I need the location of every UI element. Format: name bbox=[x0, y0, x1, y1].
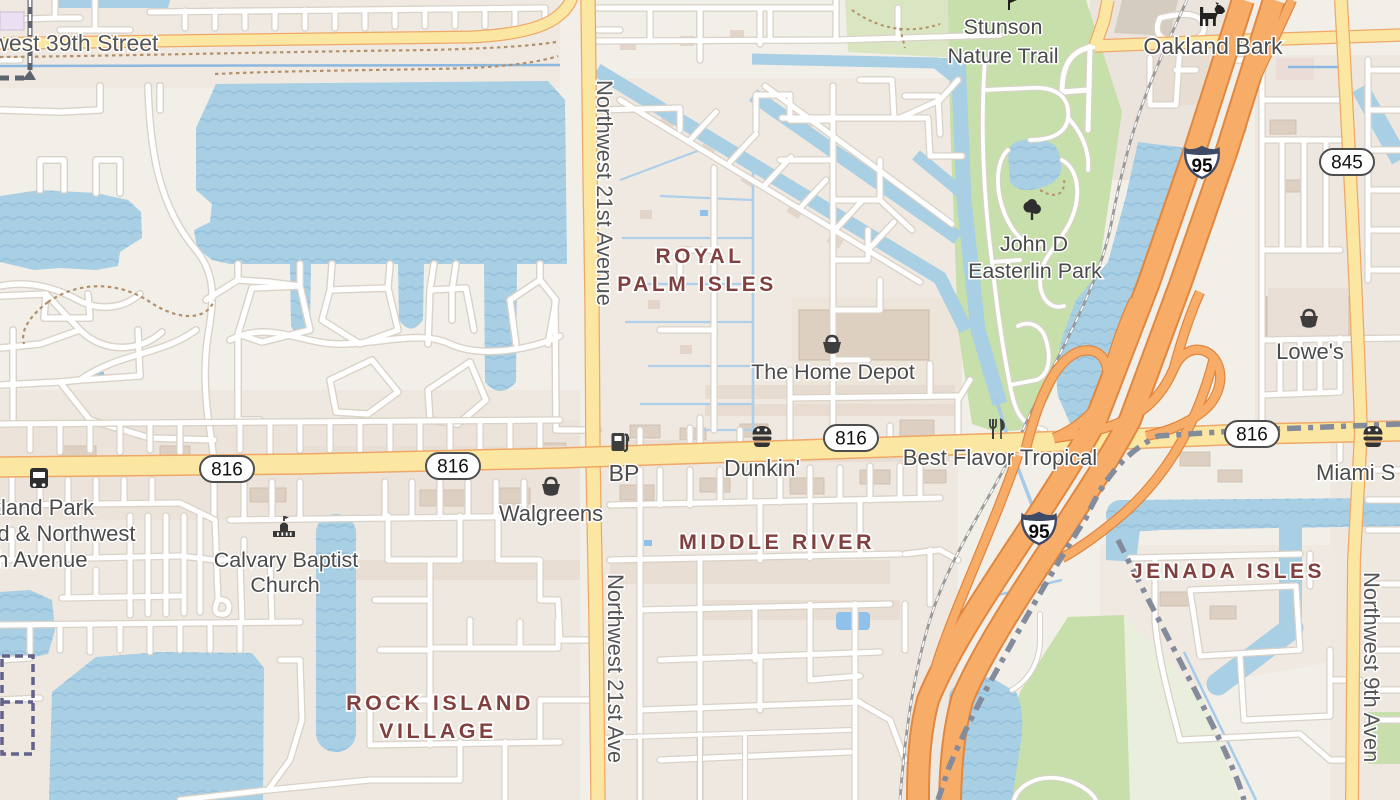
svg-text:kland Park: kland Park bbox=[0, 495, 95, 520]
svg-text:VILLAGE: VILLAGE bbox=[379, 719, 497, 743]
svg-text:Oakland Bark: Oakland Bark bbox=[1143, 33, 1283, 59]
svg-text:Church: Church bbox=[250, 573, 319, 597]
svg-text:816: 816 bbox=[835, 429, 867, 450]
svg-text:MIDDLE RIVER: MIDDLE RIVER bbox=[679, 530, 875, 554]
svg-text:95: 95 bbox=[1028, 522, 1050, 543]
svg-text:Dunkin': Dunkin' bbox=[724, 455, 800, 481]
svg-text:Northwest 21st Ave: Northwest 21st Ave bbox=[603, 574, 628, 763]
svg-text:95: 95 bbox=[1191, 156, 1213, 177]
svg-text:Stunson: Stunson bbox=[964, 15, 1043, 39]
svg-text:rd & Northwest: rd & Northwest bbox=[0, 521, 136, 546]
svg-text:845: 845 bbox=[1331, 153, 1363, 174]
svg-text:816: 816 bbox=[437, 457, 469, 478]
svg-text:Best Flavor Tropical: Best Flavor Tropical bbox=[903, 445, 1097, 470]
svg-text:Northwest 39th Street: Northwest 39th Street bbox=[0, 30, 159, 56]
svg-text:PALM ISLES: PALM ISLES bbox=[617, 273, 776, 296]
svg-text:Nature Trail: Nature Trail bbox=[947, 44, 1058, 68]
svg-text:816: 816 bbox=[211, 460, 243, 481]
svg-text:ROCK ISLAND: ROCK ISLAND bbox=[346, 691, 534, 715]
svg-text:Northwest 21st Avenue: Northwest 21st Avenue bbox=[592, 80, 617, 306]
svg-text:The Home Depot: The Home Depot bbox=[751, 360, 915, 384]
svg-text:JENADA ISLES: JENADA ISLES bbox=[1131, 560, 1325, 583]
svg-text:th Avenue: th Avenue bbox=[0, 547, 87, 572]
svg-text:816: 816 bbox=[1236, 425, 1268, 446]
svg-text:Easterlin Park: Easterlin Park bbox=[968, 259, 1102, 283]
svg-text:Northwest 9th Aven: Northwest 9th Aven bbox=[1359, 572, 1384, 762]
svg-text:Lowe's: Lowe's bbox=[1276, 339, 1344, 364]
svg-text:Calvary Baptist: Calvary Baptist bbox=[214, 548, 359, 572]
svg-text:John D: John D bbox=[1000, 232, 1068, 256]
svg-text:Miami S: Miami S bbox=[1316, 460, 1395, 485]
svg-text:BP: BP bbox=[609, 460, 640, 486]
svg-text:Walgreens: Walgreens bbox=[499, 501, 603, 526]
svg-text:ROYAL: ROYAL bbox=[655, 245, 744, 268]
